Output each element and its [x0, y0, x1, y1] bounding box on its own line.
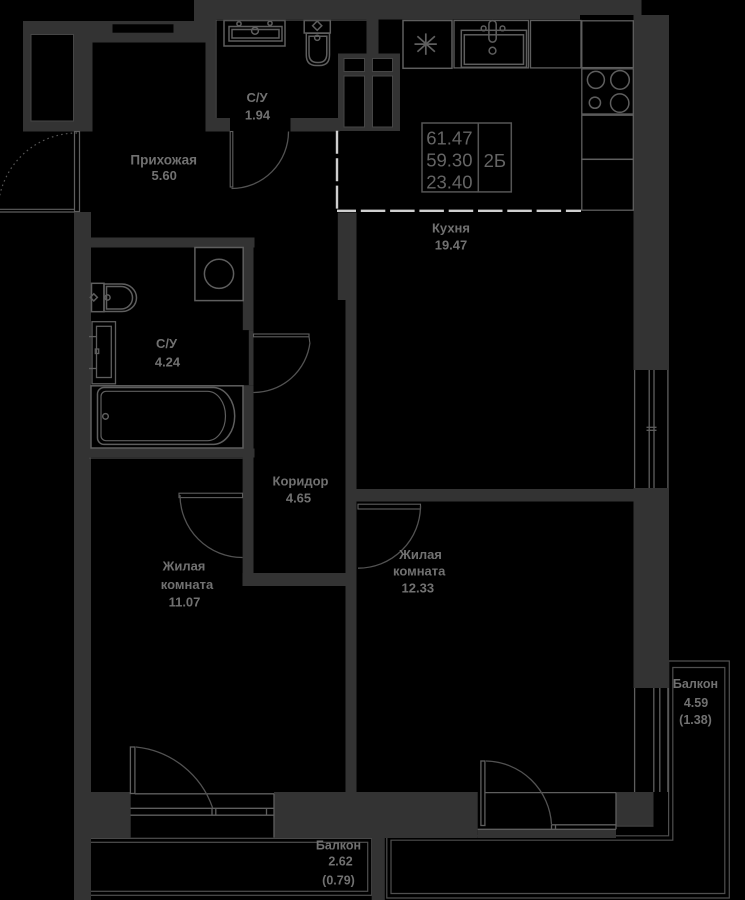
svg-text:(0.79): (0.79)	[322, 874, 355, 888]
svg-text:(1.38): (1.38)	[679, 713, 712, 727]
svg-text:Прихожая: Прихожая	[130, 153, 197, 168]
svg-text:4.59: 4.59	[684, 696, 708, 710]
svg-text:1.94: 1.94	[245, 107, 271, 122]
svg-text:4.65: 4.65	[286, 491, 311, 506]
svg-text:4.24: 4.24	[155, 355, 181, 370]
svg-text:Коридор: Коридор	[273, 474, 329, 489]
svg-text:2.62: 2.62	[328, 855, 352, 869]
svg-text:2Б: 2Б	[484, 150, 506, 171]
svg-text:23.40: 23.40	[426, 172, 472, 193]
svg-text:комната: комната	[161, 577, 214, 592]
svg-text:комната: комната	[393, 564, 446, 579]
svg-text:Балкон: Балкон	[673, 677, 718, 691]
svg-text:59.30: 59.30	[426, 150, 472, 171]
svg-text:Жилая: Жилая	[398, 547, 442, 562]
svg-text:61.47: 61.47	[426, 127, 472, 148]
svg-text:Жилая: Жилая	[162, 559, 206, 574]
svg-text:12.33: 12.33	[402, 580, 435, 595]
svg-text:Балкон: Балкон	[316, 839, 361, 853]
svg-text:11.07: 11.07	[169, 595, 201, 610]
svg-text:19.47: 19.47	[435, 237, 468, 252]
svg-text:С/У: С/У	[156, 336, 178, 351]
svg-text:5.60: 5.60	[152, 168, 177, 183]
svg-text:С/У: С/У	[246, 90, 268, 105]
svg-text:Кухня: Кухня	[432, 221, 470, 236]
